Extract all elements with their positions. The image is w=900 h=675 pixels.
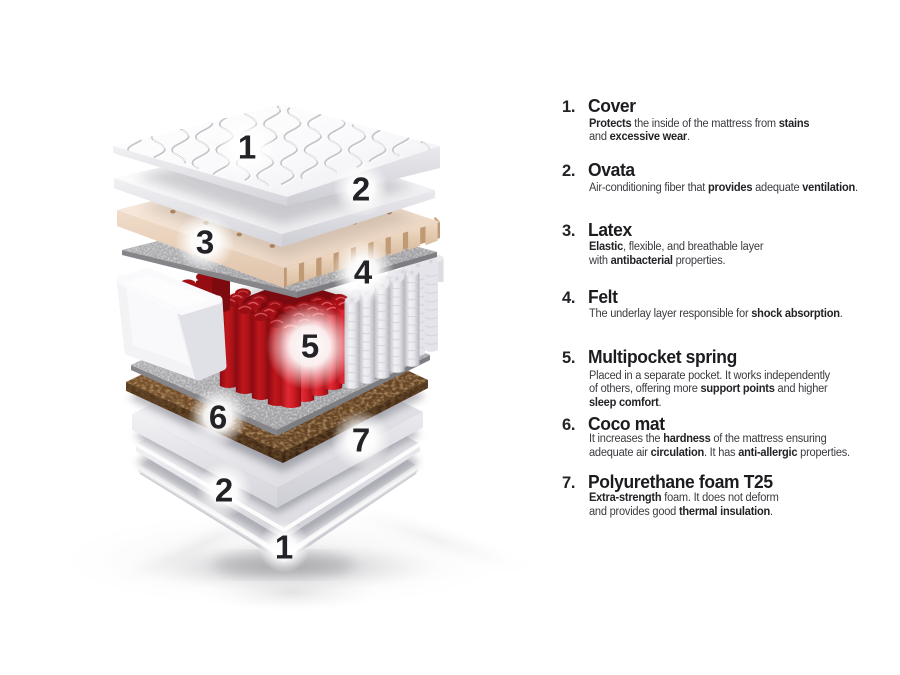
svg-text:2: 2 (352, 171, 370, 208)
svg-text:5: 5 (301, 328, 319, 365)
svg-text:4: 4 (354, 254, 373, 291)
svg-text:1: 1 (238, 129, 256, 166)
svg-text:7: 7 (352, 422, 370, 459)
svg-text:6: 6 (209, 399, 227, 436)
svg-text:3: 3 (196, 224, 214, 261)
svg-text:2: 2 (215, 472, 233, 509)
svg-text:1: 1 (275, 529, 293, 566)
